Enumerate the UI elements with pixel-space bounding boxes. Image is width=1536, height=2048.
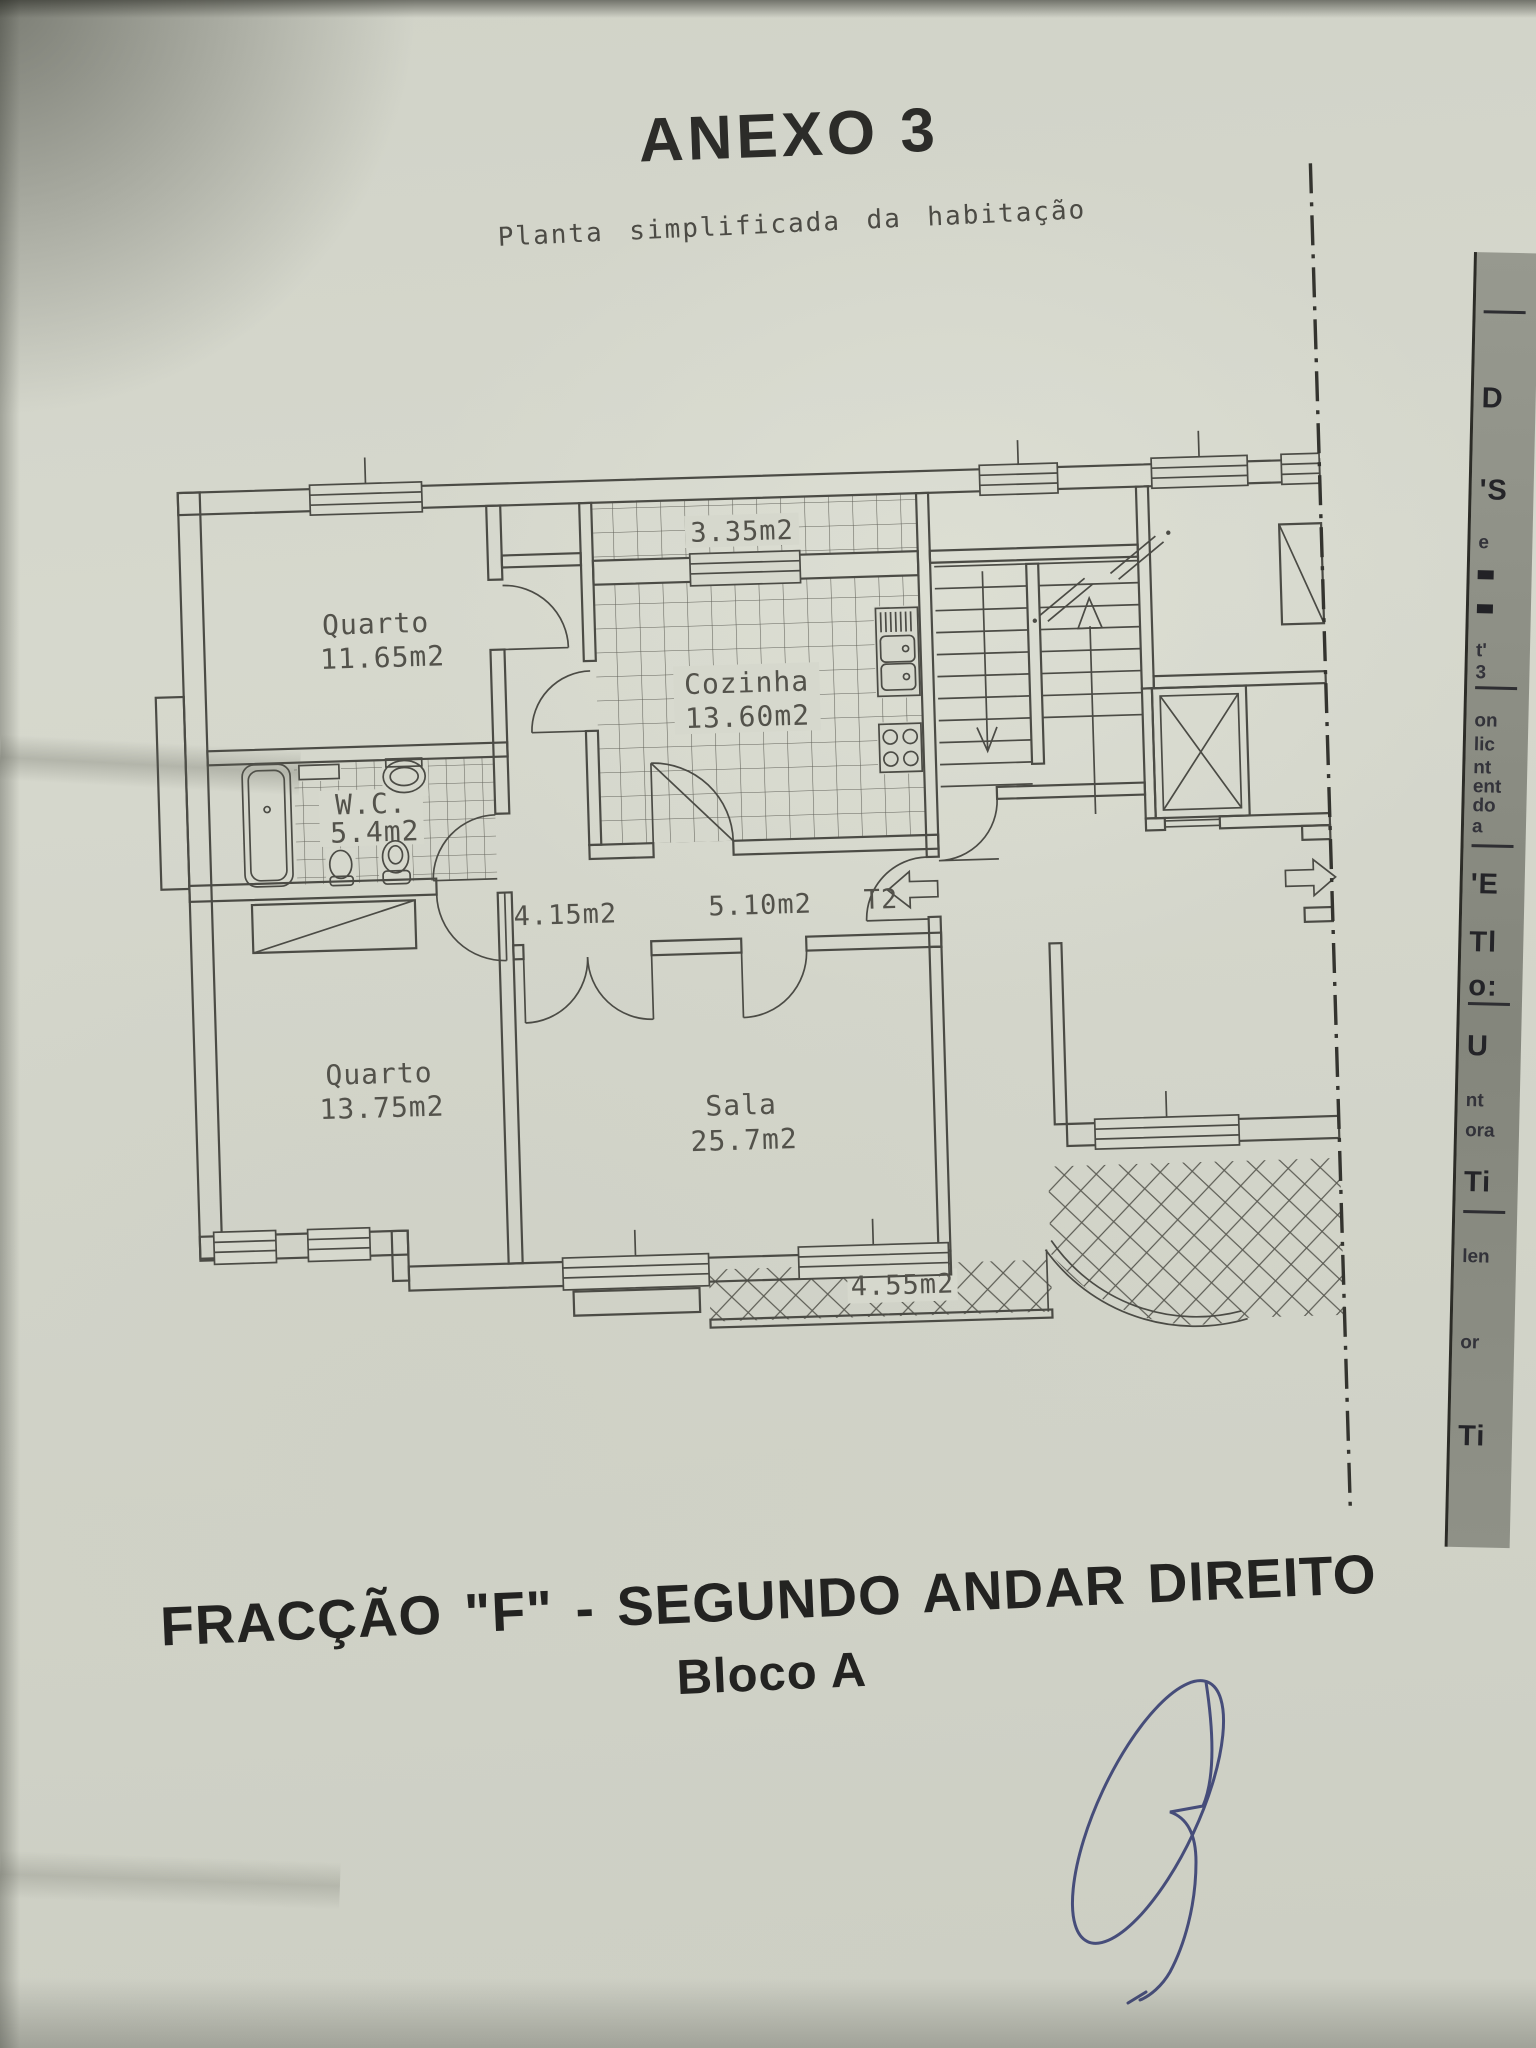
signature-ink <box>0 0 1536 2048</box>
